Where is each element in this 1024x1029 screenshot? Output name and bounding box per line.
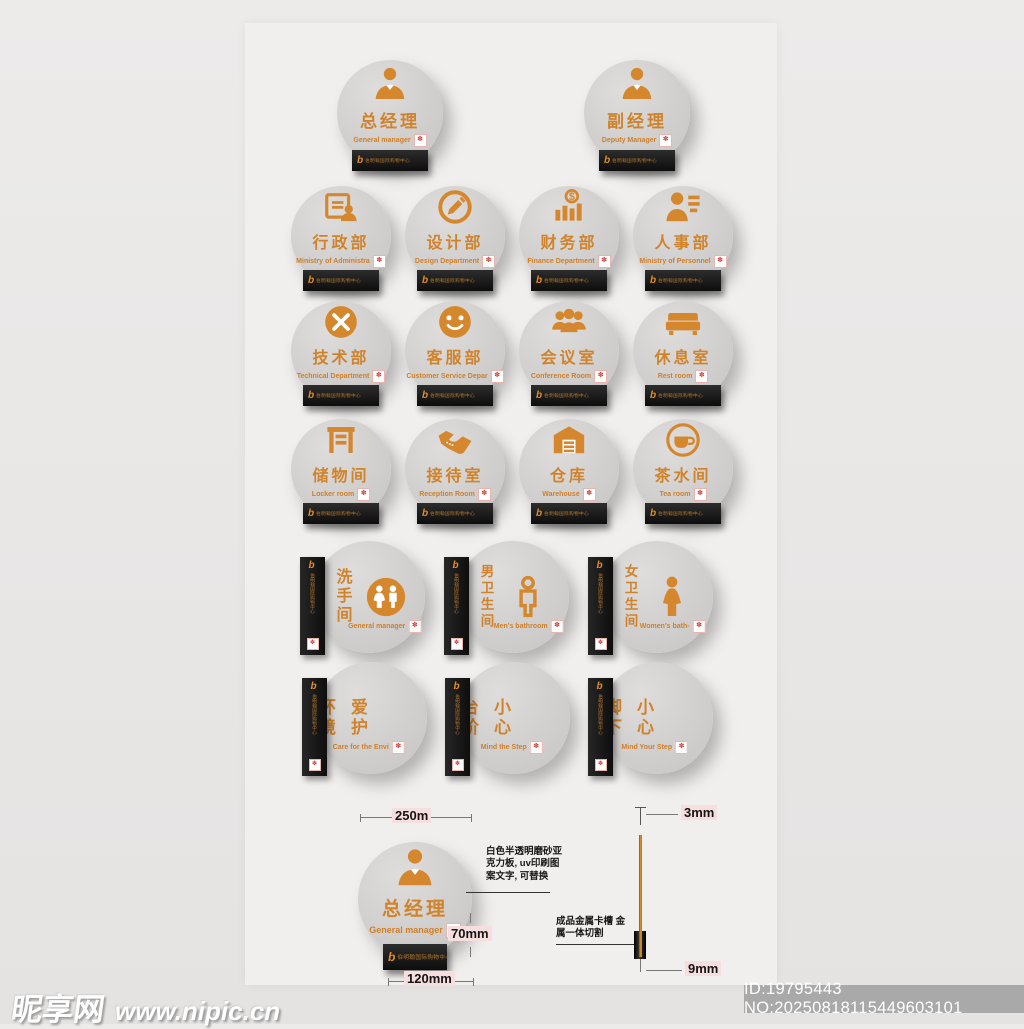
sign-subtitle-row: Care for the Envi✽ xyxy=(313,741,425,754)
sign-circle: 台阶小心Mind the Step✽ xyxy=(458,662,570,774)
sign-base-bar: b伯明翰国际购物中心 xyxy=(645,270,721,291)
side-view-base-tick xyxy=(640,959,641,972)
side-view-acrylic-plate xyxy=(639,835,642,957)
brand-name: 伯明翰国际购物中心 xyxy=(365,158,410,164)
trademark-badge-icon: ✽ xyxy=(357,488,370,501)
sign-subtitle: Technical Department xyxy=(297,373,370,380)
brand-name: 伯明翰国际购物中心 xyxy=(430,278,475,284)
trademark-badge-icon: ✽ xyxy=(451,638,463,650)
sign-base-bar: b伯明翰国际购物中心 xyxy=(303,503,379,524)
brand-name: 伯明翰国际购物中心 xyxy=(598,573,604,638)
trademark-badge-icon: ✽ xyxy=(530,741,543,754)
brand-name: 伯明翰国际购物中心 xyxy=(598,694,604,759)
sign-door-plate: $财务部Finance Department✽b伯明翰国际购物中心 xyxy=(519,186,619,320)
sign-title-column: 小心 xyxy=(488,698,513,738)
trademark-badge-icon: ✽ xyxy=(583,488,596,501)
sign-subtitle-row: Ministry of Administra✽ xyxy=(296,255,386,268)
trademark-badge-icon: ✽ xyxy=(595,638,607,650)
sign-circle: 洗手间General manager✽ xyxy=(313,541,425,653)
brand-name: 伯明翰国际购物中心 xyxy=(544,511,589,517)
sign-title: 财务部 xyxy=(540,229,597,253)
locker-icon xyxy=(322,421,360,459)
wc-icon xyxy=(363,572,409,622)
sign-subtitle-row: General manager✽ xyxy=(353,134,426,147)
brand-logo: b xyxy=(308,561,314,571)
sign-subtitle-row: Men's bathroom✽ xyxy=(473,620,585,633)
brand-logo: b xyxy=(650,509,656,519)
rest-icon xyxy=(664,303,702,341)
brand-name: 伯明翰国际购物中心 xyxy=(397,953,447,961)
brand-logo: b xyxy=(422,391,428,401)
sign-door-plate: 储物间Locker room✽b伯明翰国际购物中心 xyxy=(291,419,391,553)
sign-subtitle: Deputy Manager xyxy=(602,137,656,144)
svg-text:$: $ xyxy=(569,191,575,203)
sign-subtitle-row: Rest room✽ xyxy=(658,370,709,383)
dimension-label-width: 250m xyxy=(392,808,431,823)
sign-subtitle: Care for the Envi xyxy=(333,744,389,751)
brand-name: 伯明翰国际购物中心 xyxy=(455,694,461,759)
brand-logo: b xyxy=(308,391,314,401)
sign-subtitle-row: Conference Room✽ xyxy=(531,370,607,383)
sign-subtitle-row: Deputy Manager✽ xyxy=(602,134,672,147)
sign-subtitle: Finance Department xyxy=(527,258,594,265)
brand-logo: b xyxy=(452,561,458,571)
sign-subtitle: Mind Your Step xyxy=(621,744,672,751)
sign-subtitle-row: Reception Room✽ xyxy=(419,488,491,501)
sign-subtitle: Ministry of Personnel xyxy=(639,258,710,265)
sign-subtitle: Conference Room xyxy=(531,373,591,380)
meeting-icon xyxy=(550,303,588,341)
sign-subtitle-row: Ministry of Personnel✽ xyxy=(639,255,726,268)
dimension-label-thickness: 3mm xyxy=(681,805,717,820)
sign-subtitle-row: Tea room✽ xyxy=(660,488,707,501)
brand-name: 伯明翰国际购物中心 xyxy=(612,158,657,164)
trademark-badge-icon: ✽ xyxy=(594,370,607,383)
trademark-badge-icon: ✽ xyxy=(595,759,607,771)
sign-title: 储物间 xyxy=(312,462,369,486)
warehouse-icon xyxy=(550,421,588,459)
sign-title: 台阶小心 xyxy=(456,698,563,738)
trademark-badge-icon: ✽ xyxy=(408,620,421,633)
sign-title: 行政部 xyxy=(312,229,369,253)
sign-title-column: 小心 xyxy=(631,698,656,738)
brand-logo: b xyxy=(308,276,314,286)
trademark-badge-icon: ✽ xyxy=(598,255,611,268)
sign-door-plate: 行政部Ministry of Administra✽b伯明翰国际购物中心 xyxy=(291,186,391,320)
brand-logo: b xyxy=(604,156,610,166)
sign-base-bar: b伯明翰国际购物中心 xyxy=(645,503,721,524)
sign-base-bar: b伯明翰国际购物中心 xyxy=(417,503,493,524)
sign-door-plate: 副经理Deputy Manager✽b伯明翰国际购物中心 xyxy=(584,60,690,200)
sign-base-bar: b伯明翰国际购物中心 xyxy=(531,503,607,524)
sign-title: 仓库 xyxy=(550,462,588,486)
sign-door-plate: 人事部Ministry of Personnel✽b伯明翰国际购物中心 xyxy=(633,186,733,320)
sign-subtitle-row: Women's bath-✽ xyxy=(617,620,729,633)
brand-name: 伯明翰国际购物中心 xyxy=(430,511,475,517)
brand-logo: b xyxy=(536,276,542,286)
sign-title: 茶水间 xyxy=(654,462,711,486)
dimension-tick xyxy=(470,947,471,957)
dimension-label-plate-width: 120mm xyxy=(404,971,455,986)
dimension-label-plate-height: 70mm xyxy=(448,926,492,941)
trademark-badge-icon: ✽ xyxy=(414,134,427,147)
trademark-badge-icon: ✽ xyxy=(694,488,707,501)
sign-subtitle: Women's bath- xyxy=(640,623,690,630)
finance-icon: $ xyxy=(550,188,588,226)
sign-circle: 男卫生间Men's bathroom✽ xyxy=(457,541,569,653)
holder-note: 成品金属卡槽 金属一体切割 xyxy=(556,916,626,941)
sign-base-bar: b伯明翰国际购物中心 xyxy=(303,270,379,291)
sign-side-bar: b伯明翰国际购物中心✽ xyxy=(588,557,613,655)
sign-subtitle: Men's bathroom xyxy=(494,623,548,630)
sign-door-plate: 客服部Customer Service Depar✽b伯明翰国际购物中心 xyxy=(405,301,505,435)
sign-subtitle: General manager xyxy=(353,137,410,144)
sign-base-bar: b伯明翰国际购物中心 xyxy=(352,150,428,171)
sign-base-bar: b伯明翰国际购物中心 xyxy=(417,270,493,291)
sign-subtitle-row: Design Department✽ xyxy=(415,255,495,268)
sign-door-plate: 会议室Conference Room✽b伯明翰国际购物中心 xyxy=(519,301,619,435)
thickness-leader-line xyxy=(646,814,678,815)
brand-logo: b xyxy=(596,561,602,571)
sign-title: 脚下小心 xyxy=(599,698,706,738)
manager-icon xyxy=(392,845,438,891)
brand-name: 伯明翰国际购物中心 xyxy=(316,511,361,517)
sign-title: 会议室 xyxy=(540,344,597,368)
brand-logo: b xyxy=(422,276,428,286)
sign-title: 设计部 xyxy=(426,229,483,253)
sign-door-plate: 脚下小心Mind Your Step✽b伯明翰国际购物中心✽ xyxy=(601,662,713,808)
sign-subtitle-row: General manager✽ xyxy=(329,620,441,633)
trademark-badge-icon: ✽ xyxy=(695,370,708,383)
brand-name: 伯明翰国际购物中心 xyxy=(316,393,361,399)
trademark-badge-icon: ✽ xyxy=(491,370,504,383)
sign-circle: 女卫生间Women's bath-✽ xyxy=(601,541,713,653)
sign-subtitle: Tea room xyxy=(660,491,691,498)
brand-name: 伯明翰国际购物中心 xyxy=(310,573,316,638)
brand-name: 伯明翰国际购物中心 xyxy=(430,393,475,399)
sign-door-plate: 设计部Design Department✽b伯明翰国际购物中心 xyxy=(405,186,505,320)
tea-icon xyxy=(664,421,702,459)
brand-name: 伯明翰国际购物中心 xyxy=(658,278,703,284)
watermark: 昵享网 www.nipic.cn xyxy=(12,984,280,1029)
sign-title: 接待室 xyxy=(426,462,483,486)
sign-title: 副经理 xyxy=(607,107,667,132)
dimension-tick xyxy=(470,913,471,923)
trademark-badge-icon: ✽ xyxy=(551,620,564,633)
sign-side-bar: b伯明翰国际购物中心✽ xyxy=(588,678,613,776)
trademark-badge-icon: ✽ xyxy=(373,255,386,268)
sign-subtitle: Reception Room xyxy=(419,491,475,498)
watermark-url: www.nipic.cn xyxy=(115,996,280,1027)
design-icon xyxy=(436,188,474,226)
brand-logo: b xyxy=(453,682,459,692)
trademark-badge-icon: ✽ xyxy=(452,759,464,771)
sign-door-plate: 技术部Technical Department✽b伯明翰国际购物中心 xyxy=(291,301,391,435)
trademark-badge-icon: ✽ xyxy=(392,741,405,754)
sign-door-plate: 休息室Rest room✽b伯明翰国际购物中心 xyxy=(633,301,733,435)
manager-icon xyxy=(370,64,410,104)
sign-title-column: 爱护 xyxy=(345,698,370,738)
holder-note-leader-line xyxy=(556,944,636,945)
brand-logo: b xyxy=(310,682,316,692)
sign-subtitle: Warehouse xyxy=(542,491,579,498)
sign-door-plate: 台阶小心Mind the Step✽b伯明翰国际购物中心✽ xyxy=(458,662,570,808)
male-icon xyxy=(505,572,551,622)
brand-logo: b xyxy=(650,391,656,401)
sign-title: 环境爱护 xyxy=(313,698,420,738)
sign-title: 总经理 xyxy=(382,894,448,921)
sign-subtitle: Ministry of Administra xyxy=(296,258,370,265)
brand-name: 伯明翰国际购物中心 xyxy=(454,573,460,638)
sign-title: 洗手间 xyxy=(330,568,354,625)
brand-name: 伯明翰国际购物中心 xyxy=(544,278,589,284)
sign-base-bar: b伯明翰国际购物中心 xyxy=(383,944,447,970)
sign-door-plate: 环境爱护Care for the Envi✽b伯明翰国际购物中心✽ xyxy=(315,662,427,808)
sign-door-plate: 总经理General manager✽b伯明翰国际购物中心 xyxy=(337,60,443,200)
side-view-thickness-tick xyxy=(640,807,641,825)
brand-name: 伯明翰国际购物中心 xyxy=(544,393,589,399)
sign-subtitle: Customer Service Depar xyxy=(406,373,487,380)
trademark-badge-icon: ✽ xyxy=(693,620,706,633)
sign-subtitle: Rest room xyxy=(658,373,693,380)
sign-side-bar: b伯明翰国际购物中心✽ xyxy=(300,557,325,655)
brand-logo: b xyxy=(308,509,314,519)
sign-subtitle-row: Locker room✽ xyxy=(312,488,370,501)
sign-subtitle-row: Mind the Step✽ xyxy=(456,741,568,754)
brand-name: 伯明翰国际购物中心 xyxy=(316,278,361,284)
sign-side-bar: b伯明翰国际购物中心✽ xyxy=(302,678,327,776)
sign-base-bar: b伯明翰国际购物中心 xyxy=(599,150,675,171)
brand-logo: b xyxy=(596,682,602,692)
trademark-badge-icon: ✽ xyxy=(309,759,321,771)
sign-subtitle-row: Warehouse✽ xyxy=(542,488,595,501)
brand-logo: b xyxy=(536,509,542,519)
reception-icon xyxy=(436,421,474,459)
personnel-icon xyxy=(664,188,702,226)
sign-door-plate: 仓库Warehouse✽b伯明翰国际购物中心 xyxy=(519,419,619,553)
sign-base-bar: b伯明翰国际购物中心 xyxy=(531,270,607,291)
stock-id-bar: ID:19795443 NO:20250818115449603101 xyxy=(744,985,1024,1013)
sign-title: 总经理 xyxy=(360,107,420,132)
sign-subtitle: General manager xyxy=(369,925,443,935)
sign-base-bar: b伯明翰国际购物中心 xyxy=(417,385,493,406)
sign-base-bar: b伯明翰国际购物中心 xyxy=(645,385,721,406)
brand-logo: b xyxy=(388,951,395,963)
sign-subtitle: Design Department xyxy=(415,258,479,265)
sign-subtitle: Locker room xyxy=(312,491,354,498)
sign-base-bar: b伯明翰国际购物中心 xyxy=(531,385,607,406)
sign-title: 技术部 xyxy=(312,344,369,368)
tech-icon xyxy=(322,303,360,341)
sign-title: 客服部 xyxy=(426,344,483,368)
watermark-site-name: 昵享网 xyxy=(9,984,108,1029)
trademark-badge-icon: ✽ xyxy=(659,134,672,147)
sign-subtitle-row: Customer Service Depar✽ xyxy=(406,370,503,383)
sign-door-plate: 总经理General manager✽b伯明翰国际购物中心 xyxy=(358,842,472,990)
brand-logo: b xyxy=(422,509,428,519)
trademark-badge-icon: ✽ xyxy=(307,638,319,650)
sign-title: 人事部 xyxy=(654,229,711,253)
material-note-leader-line xyxy=(466,892,550,893)
sign-side-bar: b伯明翰国际购物中心✽ xyxy=(445,678,470,776)
sign-subtitle-row: Mind Your Step✽ xyxy=(599,741,711,754)
dimension-label-base: 9mm xyxy=(685,961,721,976)
sign-subtitle-row: Finance Department✽ xyxy=(527,255,610,268)
trademark-badge-icon: ✽ xyxy=(478,488,491,501)
brand-name: 伯明翰国际购物中心 xyxy=(312,694,318,759)
female-icon xyxy=(649,572,695,622)
brand-name: 伯明翰国际购物中心 xyxy=(658,511,703,517)
sign-circle: 环境爱护Care for the Envi✽ xyxy=(315,662,427,774)
admin-icon xyxy=(322,188,360,226)
brand-name: 伯明翰国际购物中心 xyxy=(658,393,703,399)
base-leader-line xyxy=(646,970,682,971)
sign-subtitle-row: Technical Department✽ xyxy=(297,370,386,383)
sign-door-plate: 接待室Reception Room✽b伯明翰国际购物中心 xyxy=(405,419,505,553)
brand-logo: b xyxy=(357,156,363,166)
trademark-badge-icon: ✽ xyxy=(482,255,495,268)
trademark-badge-icon: ✽ xyxy=(675,741,688,754)
sign-side-bar: b伯明翰国际购物中心✽ xyxy=(444,557,469,655)
brand-logo: b xyxy=(650,276,656,286)
sign-subtitle: General manager xyxy=(348,623,405,630)
trademark-badge-icon: ✽ xyxy=(372,370,385,383)
sign-base-bar: b伯明翰国际购物中心 xyxy=(303,385,379,406)
service-icon xyxy=(436,303,474,341)
trademark-badge-icon: ✽ xyxy=(714,255,727,268)
manager-icon xyxy=(617,64,657,104)
sign-title: 休息室 xyxy=(654,344,711,368)
design-canvas: 总经理General manager✽b伯明翰国际购物中心副经理Deputy M… xyxy=(0,0,1024,1024)
brand-logo: b xyxy=(536,391,542,401)
material-note: 白色半透明磨砂亚克力板, uv印刷图案文字, 可替换 xyxy=(486,846,564,883)
sign-subtitle: Mind the Step xyxy=(481,744,527,751)
sign-circle: 脚下小心Mind Your Step✽ xyxy=(601,662,713,774)
sign-door-plate: 茶水间Tea room✽b伯明翰国际购物中心 xyxy=(633,419,733,553)
